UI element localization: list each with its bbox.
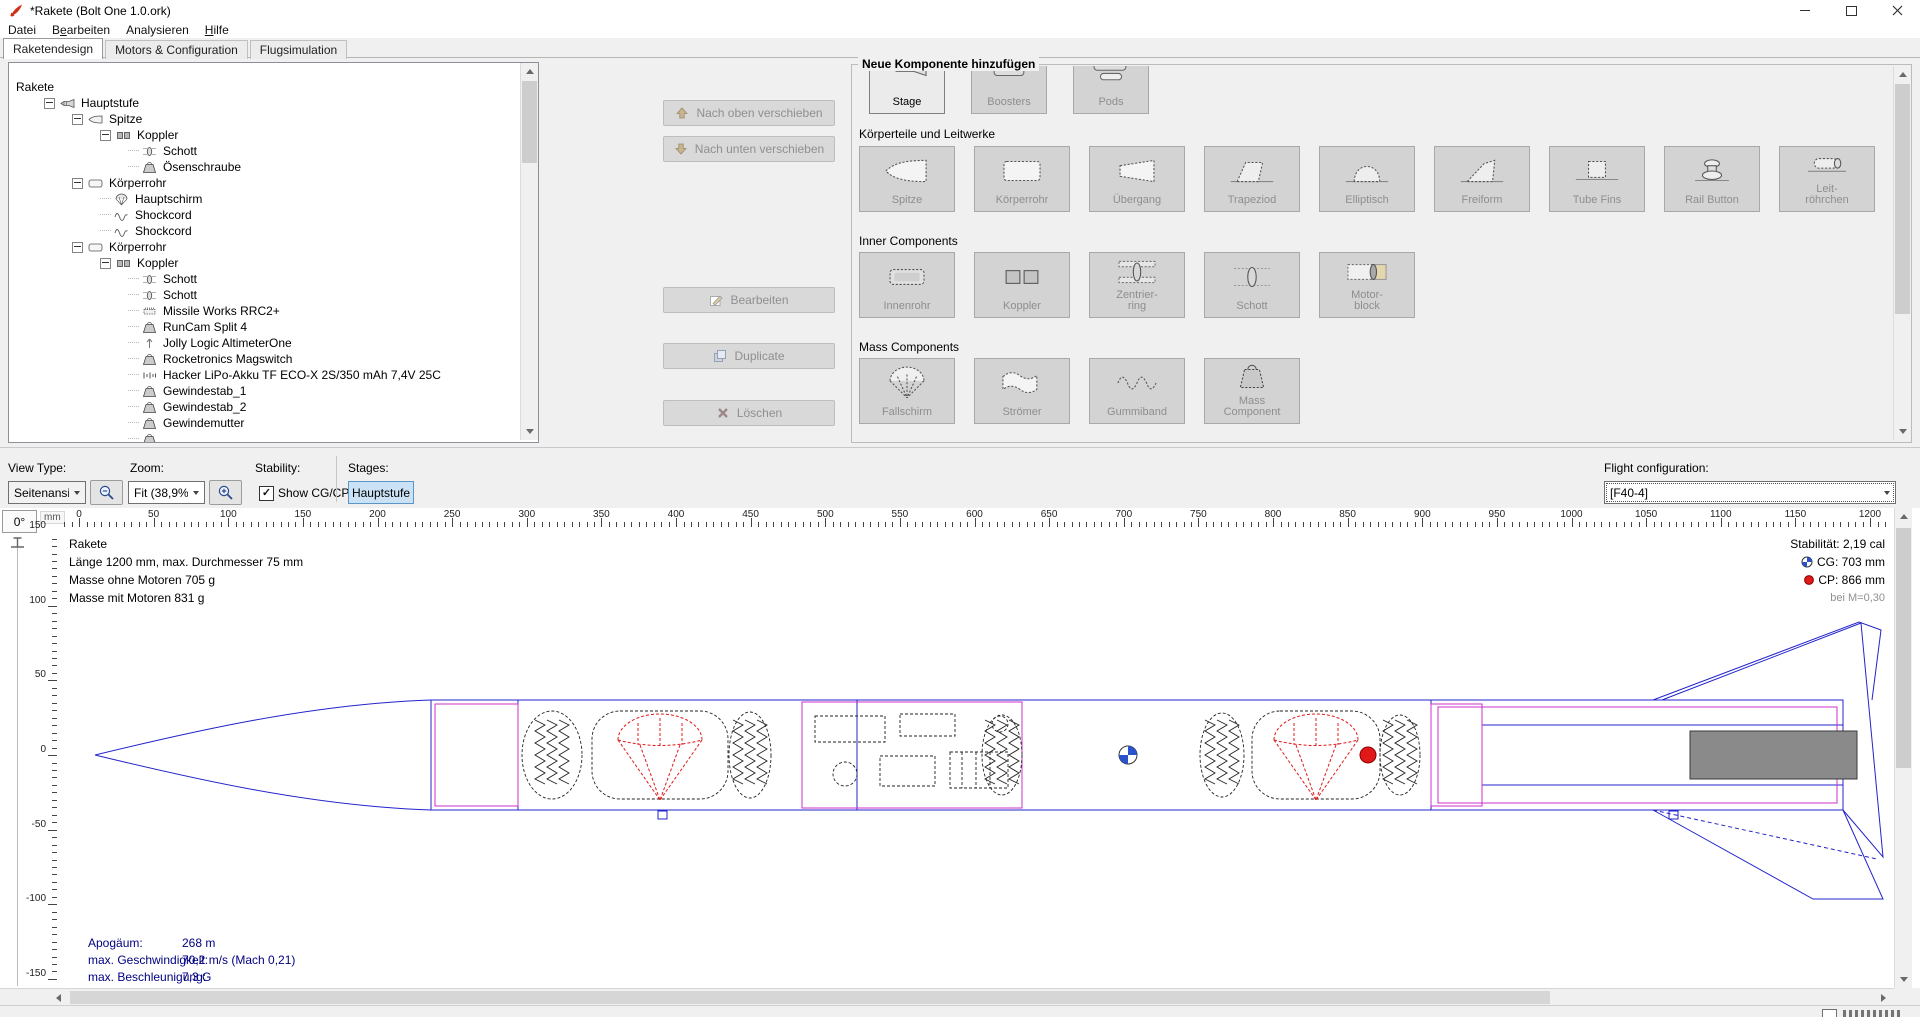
tree-item-label: Koppler [137, 256, 178, 270]
tree-row-rocketronics-magswitch[interactable]: Rocketronics Magswitch [12, 351, 520, 367]
clipped-checkbox[interactable] [1822, 1009, 1837, 1017]
tree-expander[interactable] [100, 258, 111, 269]
tree-item-label: Gewindestab_1 [163, 384, 246, 398]
tab-bar: RaketendesignMotors & ConfigurationFlugs… [3, 38, 349, 58]
coupler-icon [975, 253, 1069, 301]
tab-raketendesign[interactable]: Raketendesign [3, 38, 103, 59]
tree-connector [128, 438, 139, 440]
tree-connector [100, 214, 111, 216]
chevron-down-icon [69, 491, 85, 495]
edit-label: Bearbeiten [730, 293, 788, 307]
component-tree-panel: RaketeHauptstufeSpitzeKopplerSchottÖsens… [8, 62, 539, 443]
tree-connector [128, 326, 139, 328]
palette-button-label: Gummiband [1090, 407, 1184, 423]
tree-row-k-rperrohr[interactable]: Körperrohr [12, 175, 520, 191]
stability-label: Stability: [255, 461, 300, 475]
minimize-icon [1800, 10, 1810, 11]
maximize-icon [1846, 6, 1857, 16]
tree-item-label: Körperrohr [109, 176, 166, 190]
palette-scrollbar[interactable] [1893, 66, 1911, 440]
drogue-parachute-symbol [1274, 714, 1358, 800]
tree-expander[interactable] [100, 130, 111, 141]
tree-expander[interactable] [72, 242, 83, 253]
tree-row-senschraube[interactable]: Ösenschraube [12, 159, 520, 175]
palette-button-label: Strömer [975, 407, 1069, 423]
palette-button-label: Tube Fins [1550, 195, 1644, 211]
tree-item-label: Shockcord [135, 208, 192, 222]
app-rocket-icon [9, 3, 24, 23]
tree-item-label: Spitze [109, 112, 142, 126]
palette-button-fallschirm[interactable]: Fallschirm [859, 358, 955, 424]
palette-row: SpitzeKörperrohrÜbergangTrapeziodEllipti… [859, 146, 1875, 212]
palette-button-rail-button[interactable]: Rail Button [1664, 146, 1760, 212]
scroll-down-arrow[interactable] [521, 423, 538, 440]
tree-row-rakete[interactable]: Rakete [12, 79, 520, 95]
pods-icon [1074, 66, 1148, 97]
canvas-hscrollbar[interactable] [0, 988, 1894, 1006]
palette-button-k-rperrohr[interactable]: Körperrohr [974, 146, 1070, 212]
stability-value: Stabilität: 2,19 cal [1790, 535, 1885, 553]
mach-condition: bei M=0,30 [1790, 589, 1885, 607]
tree-connector [128, 406, 139, 408]
shock_cord-icon [1090, 359, 1184, 407]
tree-connector [128, 422, 139, 424]
move-up-label: Nach oben verschieben [696, 106, 822, 120]
tree-row-missile-works-rrc2[interactable]: Missile Works RRC2+ [12, 303, 520, 319]
engine_block-icon [1320, 253, 1414, 290]
scrollbar-thumb[interactable] [70, 991, 1550, 1004]
rocket-info-line: Masse mit Motoren 831 g [69, 591, 204, 605]
bulkhead-icon [142, 289, 158, 302]
mass-icon [1205, 359, 1299, 396]
flight-config-value: [F40-4] [1605, 486, 1879, 500]
scroll-left-arrow[interactable] [50, 989, 67, 1006]
battery-icon [142, 369, 158, 382]
tree-row-koppler[interactable]: Koppler [12, 127, 520, 143]
sim-stat-value: 70,2 m/s (Mach 0,21) [182, 953, 295, 967]
tree-item-label: Ösenschraube [163, 160, 241, 174]
palette-button-label: Boosters [972, 97, 1046, 113]
cg-marker [1119, 746, 1137, 764]
palette-button-spitze[interactable]: Spitze [859, 146, 955, 212]
tree-indent [12, 423, 128, 424]
delete-label: Löschen [737, 406, 782, 420]
arrow-up-icon [675, 106, 689, 120]
scroll-up-arrow[interactable] [1895, 508, 1912, 525]
show-cgcp-label: Show CG/CP [278, 486, 349, 500]
shockcord-icon [114, 209, 130, 222]
palette-button-label: Körperrohr [975, 195, 1069, 211]
tree-expander[interactable] [72, 178, 83, 189]
mass-icon [142, 417, 158, 430]
palette-button-label: Rail Button [1665, 195, 1759, 211]
palette-button-label: Leit- röhrchen [1780, 184, 1874, 211]
scroll-down-arrow[interactable] [1895, 971, 1912, 988]
tree-row-schott[interactable]: Schott [12, 287, 520, 303]
nosecone-icon [860, 147, 954, 195]
minimize-button[interactable] [1782, 0, 1828, 21]
scroll-up-arrow[interactable] [521, 63, 538, 80]
duplicate-button[interactable]: Duplicate [663, 343, 835, 369]
motor-block[interactable] [1690, 731, 1857, 779]
cp-icon [1804, 575, 1814, 585]
bulkhead-icon [1205, 253, 1299, 301]
parachute-icon [114, 193, 130, 206]
bodytube-icon [88, 241, 104, 254]
palette-body: StageBoostersPodsKörperteile und Leitwer… [853, 66, 1892, 440]
zoom-out-icon [98, 484, 115, 501]
tree-item-label: RunCam Split 4 [163, 320, 247, 334]
move-down-label: Nach unten verschieben [695, 142, 824, 156]
rocket-schematic[interactable] [0, 508, 1920, 988]
palette-button-label: Innenrohr [860, 301, 954, 317]
scroll-right-arrow[interactable] [1875, 989, 1892, 1006]
window-title: *Rakete (Bolt One 1.0.ork) [30, 4, 171, 18]
component-tree: RaketeHauptstufeSpitzeKopplerSchottÖsens… [12, 79, 520, 442]
tree-item-label: Gewindemutter [163, 416, 244, 430]
sim-stat-value: 7,3 G [182, 970, 211, 984]
tree-indent [12, 199, 100, 200]
cp-marker [1360, 747, 1376, 763]
menu-bar: DateiBearbeitenAnalysierenHilfe [0, 21, 1920, 38]
tree-indent [12, 359, 128, 360]
tree-item-label: Schott [163, 144, 197, 158]
fin_ell-icon [1320, 147, 1414, 195]
tree-row-spitze[interactable]: Spitze [12, 111, 520, 127]
tree-row-jolly-logic-altimeterone[interactable]: Jolly Logic AltimeterOne [12, 335, 520, 351]
coupler-icon [116, 257, 132, 270]
tree-expander[interactable] [72, 114, 83, 125]
palette-button-label: Zentrier- ring [1090, 290, 1184, 317]
tree-row-hauptstufe[interactable]: Hauptstufe [12, 95, 520, 111]
zoom-in-icon [217, 484, 234, 501]
tree-row-hacker-lipo-akku-tf-eco-x-2s-350-mah-7-4v-25c[interactable]: Hacker LiPo-Akku TF ECO-X 2S/350 mAh 7,4… [12, 367, 520, 383]
palette-button-innenrohr[interactable]: Innenrohr [859, 252, 955, 318]
bodytube-icon [975, 147, 1069, 195]
palette-button-zentrier-ring[interactable]: Zentrier- ring [1089, 252, 1185, 318]
arrow-down-icon [674, 142, 688, 156]
title-bar[interactable]: *Rakete (Bolt One 1.0.ork) [0, 0, 1920, 21]
palette-button-label: Stage [870, 97, 944, 113]
clipped-bottom-row [0, 1005, 1920, 1017]
tree-item-label: Jolly Logic AltimeterOne [163, 336, 292, 350]
launch_lug-icon [1780, 147, 1874, 184]
tree-row-runcam-split-4[interactable]: RunCam Split 4 [12, 319, 520, 335]
menu-item-hilfe[interactable]: Hilfe [197, 22, 237, 38]
design-toolbar: View Type: Seitenansicht Zoom: Fit (38,9… [0, 447, 1920, 509]
stage-toggle-hauptstufe[interactable]: Hauptstufe [348, 481, 414, 504]
tree-item-label: Schott [163, 288, 197, 302]
tree-row-hauptschirm[interactable]: Hauptschirm [12, 191, 520, 207]
coupler-icon [116, 129, 132, 142]
tree-item-label: Hauptstufe [81, 96, 139, 110]
move-up-button[interactable]: Nach oben verschieben [663, 100, 835, 126]
tree-row-clipped[interactable] [12, 431, 520, 442]
mass-icon [142, 161, 158, 174]
altimeter-icon [142, 337, 158, 350]
show-cgcp-checkbox[interactable]: ✓ [259, 486, 274, 501]
tree-item-label: Hauptschirm [135, 192, 202, 206]
zoom-value: Fit (38,9%) [129, 486, 188, 500]
openrocket-window: *Rakete (Bolt One 1.0.ork) DateiBearbeit… [0, 0, 1920, 1017]
palette-button-schott[interactable]: Schott [1204, 252, 1300, 318]
move-down-button[interactable]: Nach unten verschieben [663, 136, 835, 162]
tree-row-gewindemutter[interactable]: Gewindemutter [12, 415, 520, 431]
tree-indent [12, 247, 72, 248]
tree-indent [12, 231, 100, 232]
tree-row-schott[interactable]: Schott [12, 143, 520, 159]
mass-icon [142, 385, 158, 398]
tree-indent [12, 375, 128, 376]
view-type-value: Seitenansicht [9, 486, 69, 500]
chevron-down-icon [1879, 491, 1895, 495]
sim-stat-label: Apogäum: [88, 936, 143, 950]
clipped-label-fragment [1843, 1010, 1903, 1017]
canvas-vscrollbar[interactable] [1894, 508, 1912, 988]
palette-button-label: Schott [1205, 301, 1299, 317]
transition-icon [1090, 147, 1184, 195]
tree-connector [128, 342, 139, 344]
tree-indent [12, 151, 128, 152]
bulkhead-icon [142, 273, 158, 286]
stages-label: Stages: [348, 461, 389, 475]
mass-icon [142, 401, 158, 414]
cp-value: CP: 866 mm [1790, 571, 1885, 589]
view-type-select[interactable]: Seitenansicht [8, 481, 86, 504]
stability-info: Stabilität: 2,19 cal CG: 703 mm CP: 866 … [1790, 535, 1885, 607]
palette-button-trapeziod[interactable]: Trapeziod [1204, 146, 1300, 212]
palette-button-tube-fins[interactable]: Tube Fins [1549, 146, 1645, 212]
palette-button-stage[interactable]: Stage [869, 66, 945, 114]
palette-button-boosters[interactable]: Boosters [971, 66, 1047, 114]
tree-indent [12, 183, 72, 184]
rocket-icon [60, 97, 76, 110]
scrollbar-thumb[interactable] [522, 81, 537, 163]
tree-connector [128, 390, 139, 392]
bodytube-icon [88, 177, 104, 190]
rail_button-icon [1665, 147, 1759, 195]
tree-scrollbar[interactable] [520, 63, 538, 440]
tree-item-label: Rakete [16, 80, 54, 94]
delete-button[interactable]: Löschen [663, 400, 835, 426]
duplicate-icon [713, 349, 727, 363]
palette-button-leit-r-hrchen[interactable]: Leit- röhrchen [1779, 146, 1875, 212]
tree-row-schott[interactable]: Schott [12, 271, 520, 287]
palette-top-row: StageBoostersPods [869, 66, 1149, 114]
cg-icon [1801, 556, 1813, 568]
tree-item-label: Koppler [137, 128, 178, 142]
scroll-down-arrow[interactable] [1894, 423, 1911, 440]
tree-connector [128, 358, 139, 360]
tree-indent [12, 311, 128, 312]
rocket-info-line: Länge 1200 mm, max. Durchmesser 75 mm [69, 555, 303, 569]
mass-icon [142, 433, 158, 443]
palette-button-label: Koppler [975, 301, 1069, 317]
tree-connector [100, 230, 111, 232]
zoom-in-button[interactable] [209, 480, 242, 505]
palette-button-koppler[interactable]: Koppler [974, 252, 1070, 318]
duplicate-label: Duplicate [734, 349, 784, 363]
menu-item-analysieren[interactable]: Analysieren [118, 22, 197, 38]
view-type-label: View Type: [8, 461, 66, 475]
tab-motors-configuration[interactable]: Motors & Configuration [105, 40, 248, 59]
tree-indent [12, 263, 100, 264]
shockcord-icon [114, 225, 130, 238]
tree-item-label: Shockcord [135, 224, 192, 238]
tree-indent [12, 167, 128, 168]
tree-item-label: Gewindestab_2 [163, 400, 246, 414]
menu-item-bearbeiten[interactable]: Bearbeiten [44, 22, 118, 38]
palette-row: FallschirmStrömerGummibandMass Component [859, 358, 1300, 424]
zoom-out-button[interactable] [90, 480, 123, 505]
tree-connector [128, 166, 139, 168]
stage-toggle-label: Hauptstufe [352, 486, 410, 500]
palette-section-inner-components: Inner Components [859, 234, 958, 248]
close-icon [1892, 5, 1903, 16]
fin_free-icon [1435, 147, 1529, 195]
board-icon [142, 305, 158, 318]
tree-connector [128, 150, 139, 152]
tree-row-shockcord[interactable]: Shockcord [12, 207, 520, 223]
palette-button-label: Übergang [1090, 195, 1184, 211]
palette-button-bergang[interactable]: Übergang [1089, 146, 1185, 212]
tab-flugsimulation[interactable]: Flugsimulation [250, 40, 347, 59]
tree-indent [12, 279, 128, 280]
tree-indent [12, 327, 128, 328]
tree-indent [12, 135, 100, 136]
tree-item-label: Missile Works RRC2+ [163, 304, 280, 318]
sim-stat-value: 268 m [182, 936, 215, 950]
zoom-select[interactable]: Fit (38,9%) [128, 481, 205, 504]
edit-button[interactable]: Bearbeiten [663, 287, 835, 313]
palette-button-label: Pods [1074, 97, 1148, 113]
close-button[interactable] [1874, 0, 1920, 21]
palette-row: InnenrohrKopplerZentrier- ringSchottMoto… [859, 252, 1415, 318]
tree-connector [128, 310, 139, 312]
scrollbar-thumb[interactable] [1896, 528, 1911, 768]
bulkhead-icon [142, 145, 158, 158]
tree-indent [12, 439, 128, 440]
palette-button-freiform[interactable]: Freiform [1434, 146, 1530, 212]
palette-button-str-mer[interactable]: Strömer [974, 358, 1070, 424]
palette-button-mass-component[interactable]: Mass Component [1204, 358, 1300, 424]
palette-section-k-rperteile-und-leitwerke: Körperteile und Leitwerke [859, 127, 995, 141]
tree-item-label: Hacker LiPo-Akku TF ECO-X 2S/350 mAh 7,4… [163, 368, 441, 382]
palette-button-label: Motor- block [1320, 290, 1414, 317]
tree-row-k-rperrohr[interactable]: Körperrohr [12, 239, 520, 255]
maximize-button[interactable] [1828, 0, 1874, 21]
flight-config-label: Flight configuration: [1604, 461, 1709, 475]
scroll-up-arrow[interactable] [1894, 66, 1911, 83]
streamer-icon [975, 359, 1069, 407]
tree-connector [100, 198, 111, 200]
palette-button-elliptisch[interactable]: Elliptisch [1319, 146, 1415, 212]
palette-button-label: Elliptisch [1320, 195, 1414, 211]
palette-button-label: Trapeziod [1205, 195, 1299, 211]
tree-item-label: Rocketronics Magswitch [163, 352, 292, 366]
rocket-info-line: Rakete [69, 537, 107, 551]
tree-indent [12, 103, 44, 104]
inner_tube-icon [860, 253, 954, 301]
rocket-info-line: Masse ohne Motoren 705 g [69, 573, 215, 587]
nosecone-icon [88, 113, 104, 126]
palette-button-label: Fallschirm [860, 407, 954, 423]
cg-value: CG: 703 mm [1790, 553, 1885, 571]
palette-button-label: Mass Component [1205, 396, 1299, 423]
tube_fins-icon [1550, 147, 1644, 195]
rocket-canvas[interactable]: 0° mm 0501001502002503003504004505005506… [0, 508, 1920, 988]
tree-connector [128, 374, 139, 376]
palette-button-gummiband[interactable]: Gummiband [1089, 358, 1185, 424]
flight-config-select[interactable]: [F40-4] [1604, 481, 1896, 504]
tree-item-label: Körperrohr [109, 240, 166, 254]
add-component-panel: Neue Komponente hinzufügen StageBoosters… [851, 64, 1912, 443]
chevron-down-icon [188, 491, 204, 495]
zoom-label: Zoom: [130, 461, 164, 475]
palette-button-motor-block[interactable]: Motor- block [1319, 252, 1415, 318]
palette-button-pods[interactable]: Pods [1073, 66, 1149, 114]
tree-expander[interactable] [44, 98, 55, 109]
tree-connector [128, 294, 139, 296]
mass-icon [142, 321, 158, 334]
tree-row-gewindestab-1[interactable]: Gewindestab_1 [12, 383, 520, 399]
tree-indent [12, 215, 100, 216]
centering_ring-icon [1090, 253, 1184, 290]
scrollbar-thumb[interactable] [1895, 84, 1910, 314]
edit-icon [709, 293, 723, 307]
main-parachute-symbol [618, 714, 702, 800]
tree-row-koppler[interactable]: Koppler [12, 255, 520, 271]
tree-indent [12, 119, 72, 120]
palette-button-label: Spitze [860, 195, 954, 211]
fin_trap-icon [1205, 147, 1299, 195]
tree-row-shockcord[interactable]: Shockcord [12, 223, 520, 239]
tree-indent [12, 343, 128, 344]
tree-row-gewindestab-2[interactable]: Gewindestab_2 [12, 399, 520, 415]
tree-connector [128, 278, 139, 280]
delete-icon [716, 406, 730, 420]
mass-icon [142, 353, 158, 366]
menu-item-datei[interactable]: Datei [0, 22, 44, 38]
parachute-icon [860, 359, 954, 407]
tree-item-label: Schott [163, 272, 197, 286]
tree-indent [12, 391, 128, 392]
palette-button-label: Freiform [1435, 195, 1529, 211]
palette-section-mass-components: Mass Components [859, 340, 959, 354]
tree-indent [12, 295, 128, 296]
toolbar-separator [336, 456, 337, 502]
tree-indent [12, 407, 128, 408]
add-component-title: Neue Komponente hinzufügen [858, 57, 1039, 71]
